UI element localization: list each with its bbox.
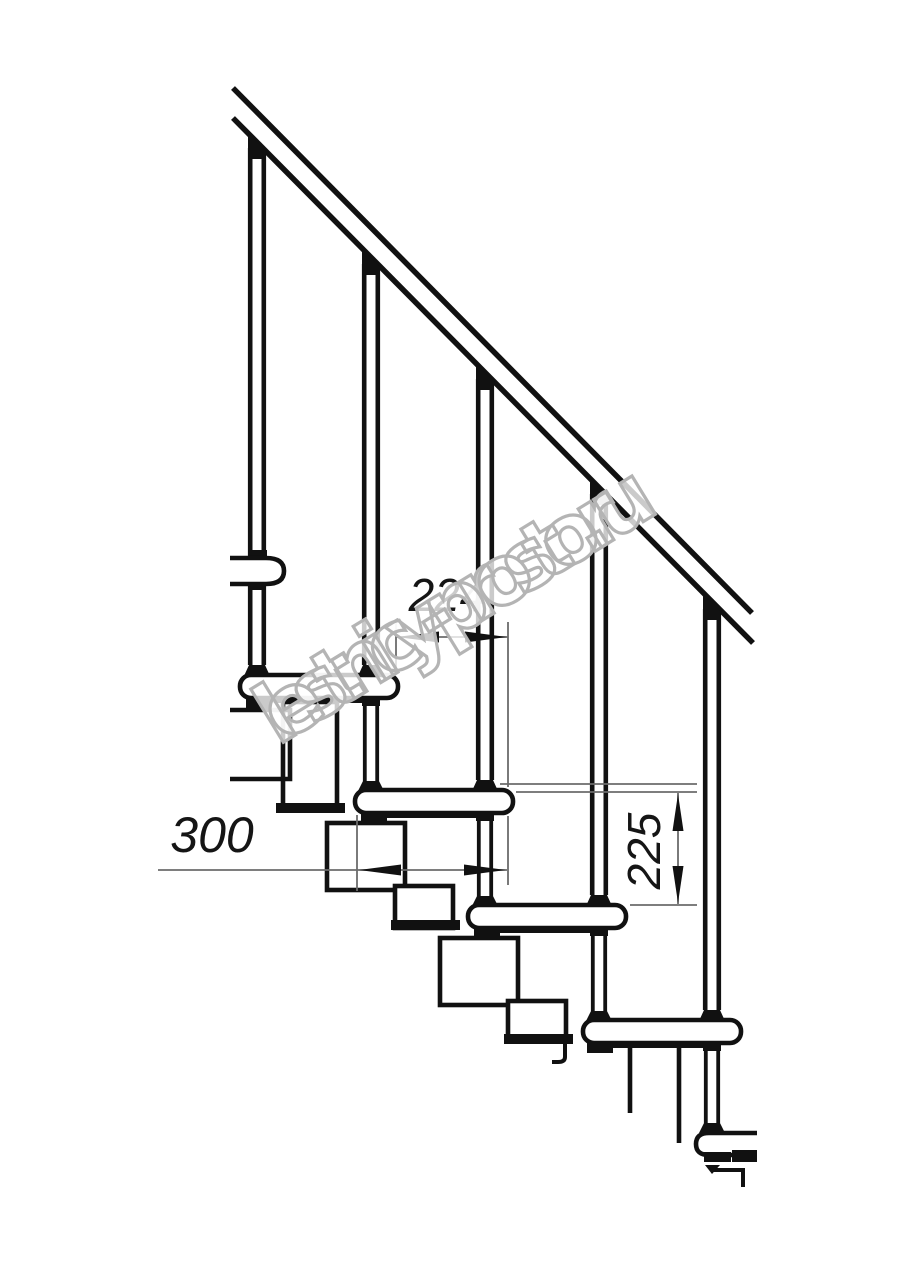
rod: [706, 1043, 718, 1123]
rod-foot: [699, 1123, 725, 1133]
tread: [583, 1020, 741, 1043]
module-joint-plate: [276, 803, 345, 813]
watermark-text: lestnicy-prosto.ru: [238, 450, 666, 763]
collar-flare: [251, 584, 266, 590]
arrow-up-icon: [673, 794, 684, 831]
module-joint-plate: [391, 920, 460, 930]
drawing-page: 224 300 225 lestnicy-prosto.ru: [0, 0, 914, 1280]
support-module: [508, 1001, 566, 1037]
module-joint-plate: [504, 1034, 573, 1044]
dimension-label-rise: 225: [618, 812, 670, 890]
foot: [699, 1010, 725, 1021]
rod-foot: [472, 896, 498, 906]
dimension-225: 225: [500, 784, 697, 905]
collar: [230, 558, 284, 584]
arrow-right-icon: [464, 865, 506, 876]
rod: [593, 928, 605, 1011]
support-module: [327, 823, 405, 890]
staircase-drawing: 224 300 225 lestnicy-prosto.ru: [0, 0, 914, 1280]
rod-foot: [358, 781, 384, 791]
foot: [472, 780, 498, 791]
foot: [586, 895, 612, 906]
support-module: [440, 938, 518, 1005]
arrow-down-icon: [673, 866, 684, 903]
tread: [468, 905, 626, 928]
module-cut-edge: [552, 1044, 565, 1062]
tread: [355, 790, 513, 813]
baluster: [705, 609, 719, 1010]
dimension-label-depth: 300: [170, 807, 254, 863]
rod: [479, 813, 491, 896]
upper-flight-tread-end: [230, 550, 284, 590]
rod-foot: [586, 1011, 612, 1021]
lower-cut-hook: [705, 1165, 743, 1187]
